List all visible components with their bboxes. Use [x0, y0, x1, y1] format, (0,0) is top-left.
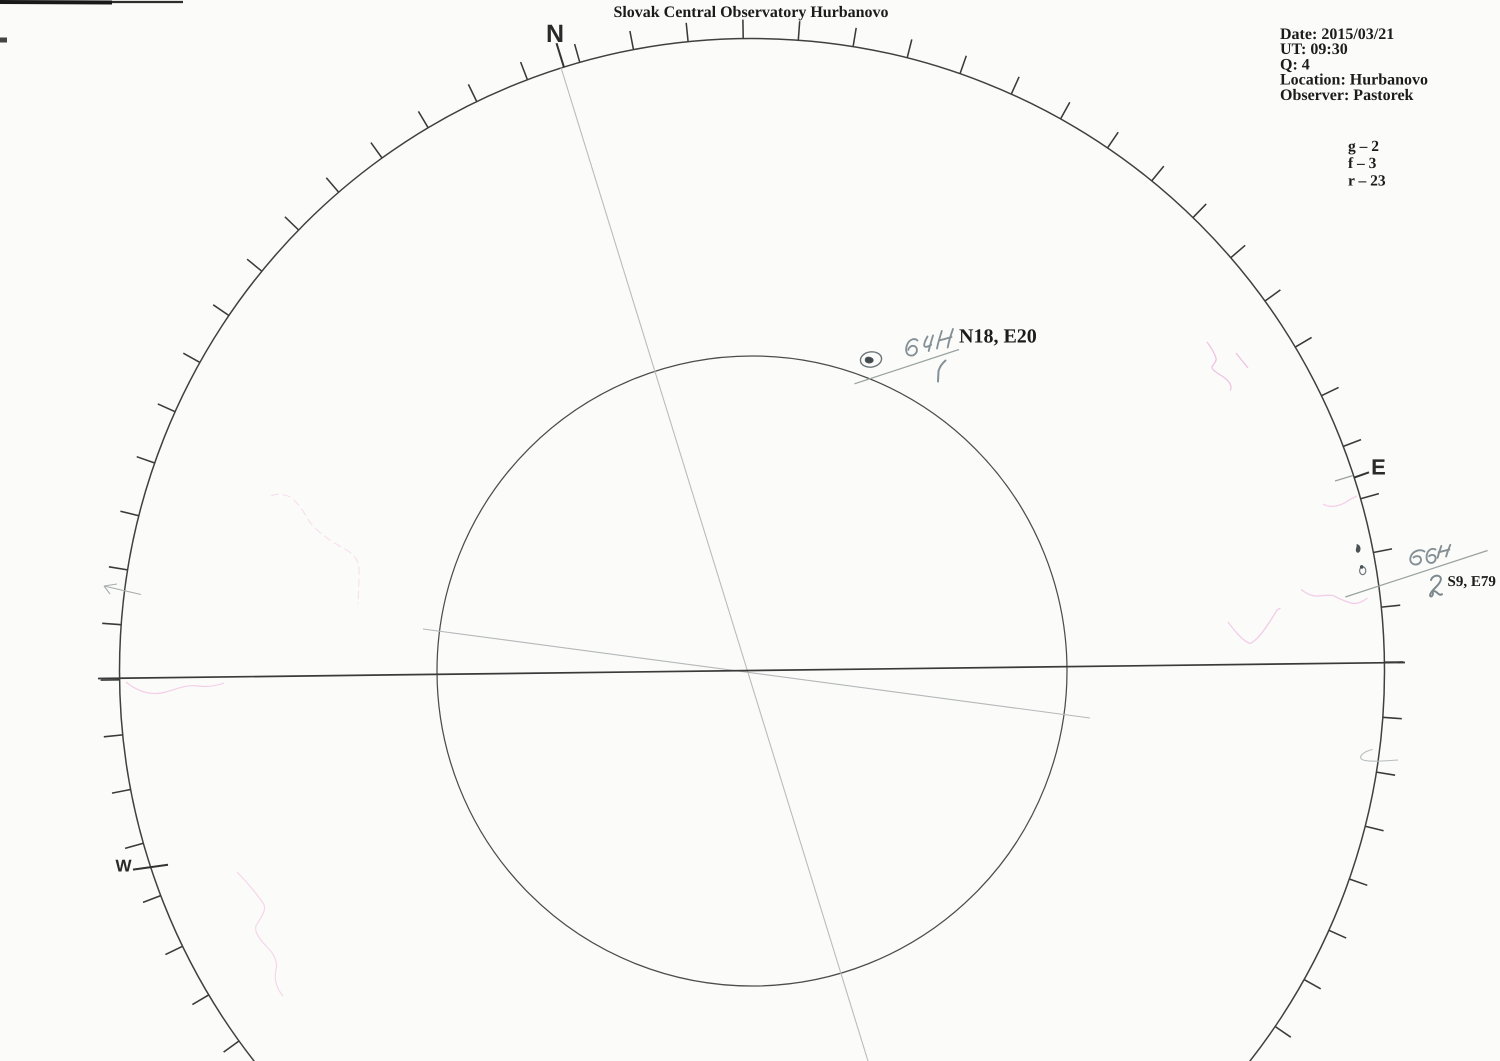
svg-text:N18, E20: N18, E20 — [959, 326, 1037, 348]
svg-text:Slovak Central Observatory Hur: Slovak Central Observatory Hurbanovo — [613, 4, 888, 21]
svg-text:Observer: Pastorek: Observer: Pastorek — [1280, 87, 1414, 104]
svg-text:r – 23: r – 23 — [1348, 173, 1386, 190]
svg-text:f – 3: f – 3 — [1348, 155, 1377, 172]
svg-text:N: N — [546, 20, 564, 48]
svg-text:W: W — [115, 857, 132, 876]
svg-text:S9, E79: S9, E79 — [1448, 574, 1496, 590]
svg-text:E: E — [1371, 455, 1386, 480]
svg-text:g – 2: g – 2 — [1348, 138, 1379, 155]
